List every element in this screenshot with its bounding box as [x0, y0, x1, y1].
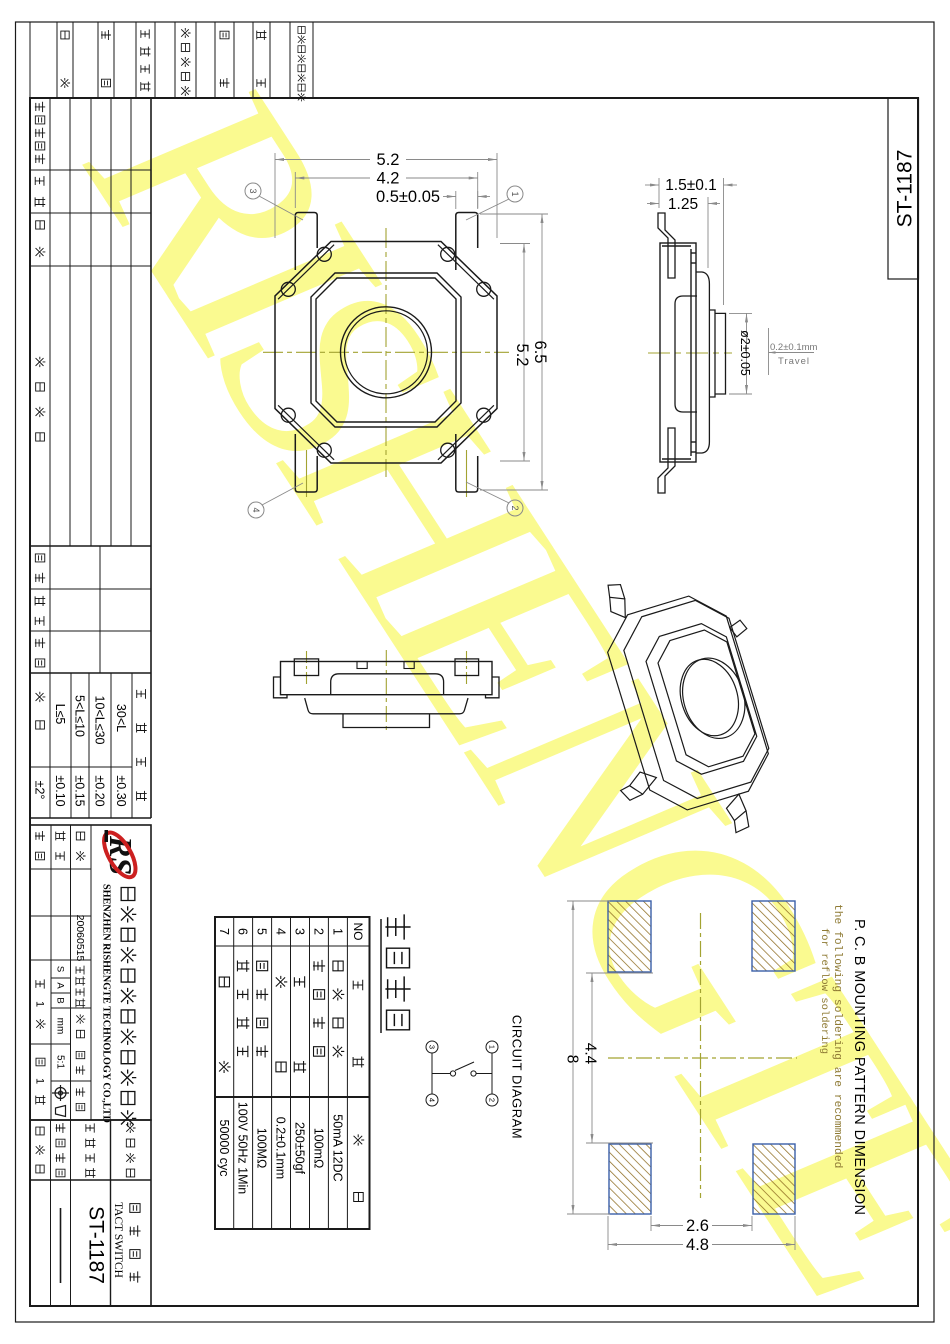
svg-text:3: 3	[427, 1045, 436, 1049]
svg-text:±0.10: ±0.10	[53, 775, 67, 806]
svg-text:ST-1187: ST-1187	[84, 1206, 107, 1284]
svg-text:0.2±0.1mm: 0.2±0.1mm	[274, 1117, 288, 1179]
svg-text:20060515: 20060515	[74, 915, 86, 962]
svg-text:1.25: 1.25	[668, 196, 698, 213]
svg-text:1: 1	[487, 1045, 496, 1049]
svg-text:6.5: 6.5	[531, 341, 549, 364]
svg-text:2: 2	[487, 1098, 496, 1102]
svg-text:6: 6	[236, 928, 250, 935]
svg-text:mm: mm	[54, 1018, 65, 1035]
svg-text:5.2: 5.2	[513, 344, 531, 367]
svg-text:NO: NO	[351, 923, 365, 941]
svg-text:5<L≤10: 5<L≤10	[73, 695, 87, 737]
svg-text:SHENZHEN RISHENGTE TECHNOLOGY: SHENZHEN RISHENGTE TECHNOLOGY CO.,LTD	[100, 884, 111, 1123]
svg-text:1: 1	[34, 1078, 46, 1084]
svg-text:1: 1	[34, 1001, 46, 1007]
svg-text:4.4: 4.4	[581, 1043, 598, 1065]
svg-text:ST-1187: ST-1187	[894, 150, 917, 228]
svg-text:A: A	[55, 982, 66, 989]
svg-text:100mΩ: 100mΩ	[312, 1128, 326, 1169]
svg-text:50000 cyc: 50000 cyc	[217, 1120, 231, 1177]
svg-text:3: 3	[248, 188, 258, 193]
svg-text:±0.15: ±0.15	[73, 775, 87, 806]
svg-text:2: 2	[312, 928, 326, 935]
svg-text:10<L≤30: 10<L≤30	[93, 696, 107, 745]
svg-text:±2°: ±2°	[33, 781, 47, 800]
svg-text:100MΩ: 100MΩ	[255, 1128, 269, 1169]
svg-text:7: 7	[217, 928, 231, 935]
svg-text:250±50gf: 250±50gf	[293, 1122, 307, 1175]
svg-text:for reflow soldering: for reflow soldering	[818, 928, 830, 1054]
svg-text:0.2±0.1mm: 0.2±0.1mm	[770, 342, 818, 353]
svg-text:CIRCUIT DIAGRAM: CIRCUIT DIAGRAM	[509, 1015, 524, 1139]
svg-text:ø2±0.05: ø2±0.05	[738, 330, 752, 376]
svg-text:TACT SWITCH: TACT SWITCH	[112, 1202, 124, 1278]
svg-text:1.5±0.1: 1.5±0.1	[665, 177, 717, 194]
svg-text:±0.30: ±0.30	[114, 775, 128, 806]
svg-text:5: 5	[255, 928, 269, 935]
svg-text:5:1: 5:1	[54, 1055, 65, 1069]
svg-text:2: 2	[510, 505, 520, 510]
svg-text:0.5±0.05: 0.5±0.05	[376, 188, 440, 206]
svg-text:4.8: 4.8	[686, 1236, 709, 1254]
svg-text:P. C. B MOUNTING PATTERN DIMEN: P. C. B MOUNTING PATTERN DIMENSION	[851, 919, 867, 1215]
svg-text:2.6: 2.6	[686, 1217, 709, 1235]
svg-text:L≤5: L≤5	[53, 704, 67, 725]
svg-text:8: 8	[563, 1055, 580, 1064]
svg-text:B: B	[55, 997, 66, 1003]
svg-text:the following soldering are re: the following soldering are recommended	[831, 904, 843, 1168]
svg-text:Travel: Travel	[778, 356, 810, 367]
svg-text:1: 1	[510, 191, 520, 196]
svg-text:4: 4	[274, 928, 288, 935]
svg-text:4: 4	[427, 1098, 436, 1102]
svg-text:4: 4	[251, 507, 261, 512]
svg-text:5.2: 5.2	[377, 151, 400, 169]
svg-text:4.2: 4.2	[377, 170, 400, 188]
svg-text:50mA 12DC: 50mA 12DC	[331, 1114, 345, 1181]
svg-text:±0.20: ±0.20	[93, 775, 107, 806]
svg-text:1: 1	[331, 928, 345, 935]
svg-text:30<L: 30<L	[114, 704, 128, 732]
svg-text:S: S	[55, 966, 66, 972]
svg-text:100V 50Hz 1Min: 100V 50Hz 1Min	[236, 1102, 250, 1194]
svg-text:3: 3	[293, 928, 307, 935]
